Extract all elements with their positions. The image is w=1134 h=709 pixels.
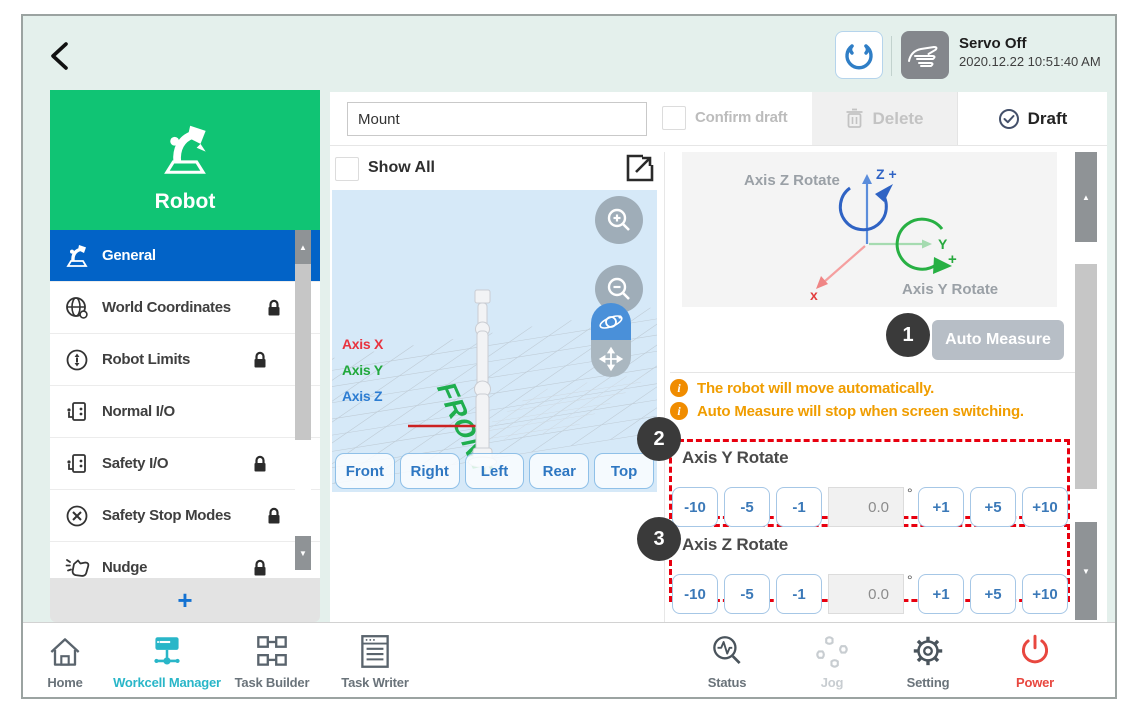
info-icon: i bbox=[670, 379, 688, 397]
stop-modes-icon bbox=[64, 503, 90, 529]
axis-y-value-field[interactable]: 0.0 bbox=[828, 487, 904, 527]
reset-icon bbox=[836, 32, 882, 78]
notice-row: i The robot will move automatically. bbox=[670, 379, 934, 397]
sidebar-header: Robot bbox=[50, 90, 320, 230]
confirm-draft-label: Confirm draft bbox=[695, 109, 787, 126]
expand-icon[interactable] bbox=[625, 153, 655, 183]
draft-label: Draft bbox=[1028, 109, 1068, 129]
sidebar-scrollbar[interactable]: ▲ ▼ bbox=[295, 230, 311, 578]
sidebar-menu: General World Coordinates Robot Limi bbox=[50, 230, 320, 578]
view-left-button[interactable]: Left bbox=[465, 453, 525, 489]
axis-y-minus-10-button[interactable]: -10 bbox=[672, 487, 718, 527]
orbit-icon bbox=[598, 309, 624, 335]
sidebar-item-general[interactable]: General bbox=[50, 230, 320, 282]
sidebar-item-world-coordinates[interactable]: World Coordinates bbox=[50, 282, 320, 334]
robot-3d-viewer[interactable]: FRONT Axis X Axis Y Axis Z bbox=[332, 190, 657, 492]
axis-z-minus-10-button[interactable]: -10 bbox=[672, 574, 718, 614]
view-top-button[interactable]: Top bbox=[594, 453, 654, 489]
servo-status-block: Servo Off 2020.12.22 10:51:40 AM bbox=[959, 35, 1101, 69]
lock-icon bbox=[264, 298, 284, 318]
panel-divider bbox=[670, 372, 1084, 373]
sidebar-title: Robot bbox=[155, 190, 216, 214]
sidebar-item-label: Nudge bbox=[102, 559, 147, 576]
show-all-checkbox[interactable] bbox=[335, 157, 359, 181]
header-divider bbox=[891, 36, 892, 76]
axis-z-degree-unit: ° bbox=[907, 572, 913, 588]
servo-button[interactable] bbox=[901, 31, 949, 79]
io-icon bbox=[64, 451, 90, 477]
trash-icon bbox=[845, 108, 864, 129]
nav-task-writer[interactable]: Task Writer bbox=[310, 632, 440, 690]
scroll-down-icon[interactable]: ▼ bbox=[295, 536, 311, 570]
scroll-up-icon[interactable]: ▲ bbox=[1075, 152, 1097, 242]
axis-z-minus-1-button[interactable]: -1 bbox=[776, 574, 822, 614]
app-window: Servo Off 2020.12.22 10:51:40 AM Robot G… bbox=[21, 14, 1117, 699]
axis-z-rotate-title: Axis Z Rotate bbox=[682, 535, 788, 555]
home-icon bbox=[45, 632, 85, 672]
axis-z-plus-10-button[interactable]: +10 bbox=[1022, 574, 1068, 614]
notice-text: The robot will move automatically. bbox=[697, 380, 934, 397]
confirm-draft-checkbox[interactable] bbox=[662, 106, 686, 130]
view-front-button[interactable]: Front bbox=[335, 453, 395, 489]
servo-hand-icon bbox=[901, 31, 947, 77]
viewer-mode-toggle bbox=[591, 303, 631, 377]
rotation-axes-diagram: Axis Z Rotate Z + Y + Axis Y Rotate x bbox=[682, 152, 1057, 307]
lock-icon bbox=[264, 506, 284, 526]
axis-y-minus-1-button[interactable]: -1 bbox=[776, 487, 822, 527]
sidebar-item-label: Robot Limits bbox=[102, 351, 190, 368]
scrollbar-thumb[interactable] bbox=[295, 264, 311, 440]
axis-z-legend: Axis Z bbox=[342, 388, 382, 404]
power-icon bbox=[1015, 632, 1055, 672]
sidebar-item-normal-io[interactable]: Normal I/O bbox=[50, 386, 320, 438]
step-3-badge: 3 bbox=[637, 517, 681, 561]
diagram-z-plus-label: Z + bbox=[876, 166, 897, 182]
timestamp: 2020.12.22 10:51:40 AM bbox=[959, 54, 1101, 69]
gear-icon bbox=[908, 632, 948, 672]
sidebar-item-robot-limits[interactable]: Robot Limits bbox=[50, 334, 320, 386]
axis-y-rotate-title: Axis Y Rotate bbox=[682, 448, 788, 468]
notice-row: i Auto Measure will stop when screen swi… bbox=[670, 402, 1024, 420]
delete-label: Delete bbox=[872, 109, 923, 129]
toolbar-divider bbox=[330, 145, 1107, 146]
axis-y-plus-10-button[interactable]: +10 bbox=[1022, 487, 1068, 527]
axis-z-minus-5-button[interactable]: -5 bbox=[724, 574, 770, 614]
step-2-badge: 2 bbox=[637, 417, 681, 461]
info-icon: i bbox=[670, 402, 688, 420]
zoom-in-icon bbox=[604, 205, 634, 235]
rotate-mode-button[interactable] bbox=[591, 303, 631, 340]
robot-arm-icon bbox=[64, 243, 90, 269]
io-icon bbox=[64, 399, 90, 425]
delete-button[interactable]: Delete bbox=[812, 92, 957, 145]
zoom-in-button[interactable] bbox=[595, 196, 643, 244]
sidebar-item-safety-io[interactable]: Safety I/O bbox=[50, 438, 320, 490]
sidebar-item-label: Safety Stop Modes bbox=[102, 507, 231, 524]
sidebar-item-label: Normal I/O bbox=[102, 403, 175, 420]
show-all-label: Show All bbox=[368, 159, 435, 177]
view-buttons-row: Front Right Left Rear Top bbox=[335, 453, 654, 489]
lock-icon bbox=[250, 454, 270, 474]
sidebar-item-label: General bbox=[102, 247, 156, 264]
auto-measure-button[interactable]: Auto Measure bbox=[932, 320, 1064, 360]
task-builder-icon bbox=[252, 632, 292, 672]
back-icon[interactable] bbox=[47, 40, 73, 72]
axis-z-value-field[interactable]: 0.0 bbox=[828, 574, 904, 614]
scroll-up-icon[interactable]: ▲ bbox=[295, 230, 311, 264]
task-writer-icon bbox=[355, 632, 395, 672]
globe-icon bbox=[64, 295, 90, 321]
sidebar-item-label: World Coordinates bbox=[102, 299, 231, 316]
axis-y-minus-5-button[interactable]: -5 bbox=[724, 487, 770, 527]
pan-icon bbox=[598, 346, 624, 372]
diagram-y-label: Y bbox=[938, 236, 948, 252]
check-circle-icon bbox=[998, 108, 1020, 130]
zoom-out-icon bbox=[604, 274, 634, 304]
robot-icon bbox=[154, 118, 216, 180]
sidebar-item-nudge[interactable]: Nudge bbox=[50, 542, 320, 578]
axis-y-legend: Axis Y bbox=[342, 362, 383, 378]
diagram-axis-y-rotate-label: Axis Y Rotate bbox=[902, 281, 998, 298]
add-workcell-button[interactable]: + bbox=[50, 578, 320, 622]
lock-icon bbox=[250, 350, 270, 370]
nudge-hand-icon bbox=[64, 555, 90, 579]
notice-text: Auto Measure will stop when screen switc… bbox=[697, 403, 1024, 420]
jog-dpad-icon bbox=[812, 632, 852, 672]
step-1-badge: 1 bbox=[886, 313, 930, 357]
sidebar-item-safety-stop-modes[interactable]: Safety Stop Modes bbox=[50, 490, 320, 542]
view-rear-button[interactable]: Rear bbox=[529, 453, 589, 489]
item-name-input[interactable] bbox=[347, 102, 647, 136]
lock-icon bbox=[250, 558, 270, 578]
axis-y-degree-unit: ° bbox=[907, 485, 913, 501]
sidebar-item-label: Safety I/O bbox=[102, 455, 168, 472]
nav-power[interactable]: Power bbox=[970, 632, 1100, 690]
reset-button[interactable] bbox=[835, 31, 883, 79]
bottom-navigation: Home Workcell Manager bbox=[23, 622, 1115, 697]
axis-z-plus-1-button[interactable]: +1 bbox=[918, 574, 964, 614]
workcell-manager-icon bbox=[147, 632, 187, 672]
content-card: Confirm draft Delete Draft Show All bbox=[330, 92, 1107, 622]
limits-icon bbox=[64, 347, 90, 373]
axis-z-plus-5-button[interactable]: +5 bbox=[970, 574, 1016, 614]
axis-x-legend: Axis X bbox=[342, 336, 383, 352]
scroll-down-icon[interactable]: ▼ bbox=[1075, 522, 1097, 620]
axis-y-plus-5-button[interactable]: +5 bbox=[970, 487, 1016, 527]
axis-y-plus-1-button[interactable]: +1 bbox=[918, 487, 964, 527]
diagram-x-label: x bbox=[810, 287, 818, 303]
scrollbar-thumb[interactable] bbox=[1075, 264, 1097, 489]
servo-status: Servo Off bbox=[959, 35, 1101, 52]
status-icon bbox=[707, 632, 747, 672]
diagram-axis-z-rotate-label: Axis Z Rotate bbox=[744, 172, 840, 189]
panel-scrollbar[interactable]: ▲ ▼ bbox=[1075, 152, 1097, 620]
draft-button[interactable]: Draft bbox=[957, 92, 1107, 145]
view-right-button[interactable]: Right bbox=[400, 453, 460, 489]
